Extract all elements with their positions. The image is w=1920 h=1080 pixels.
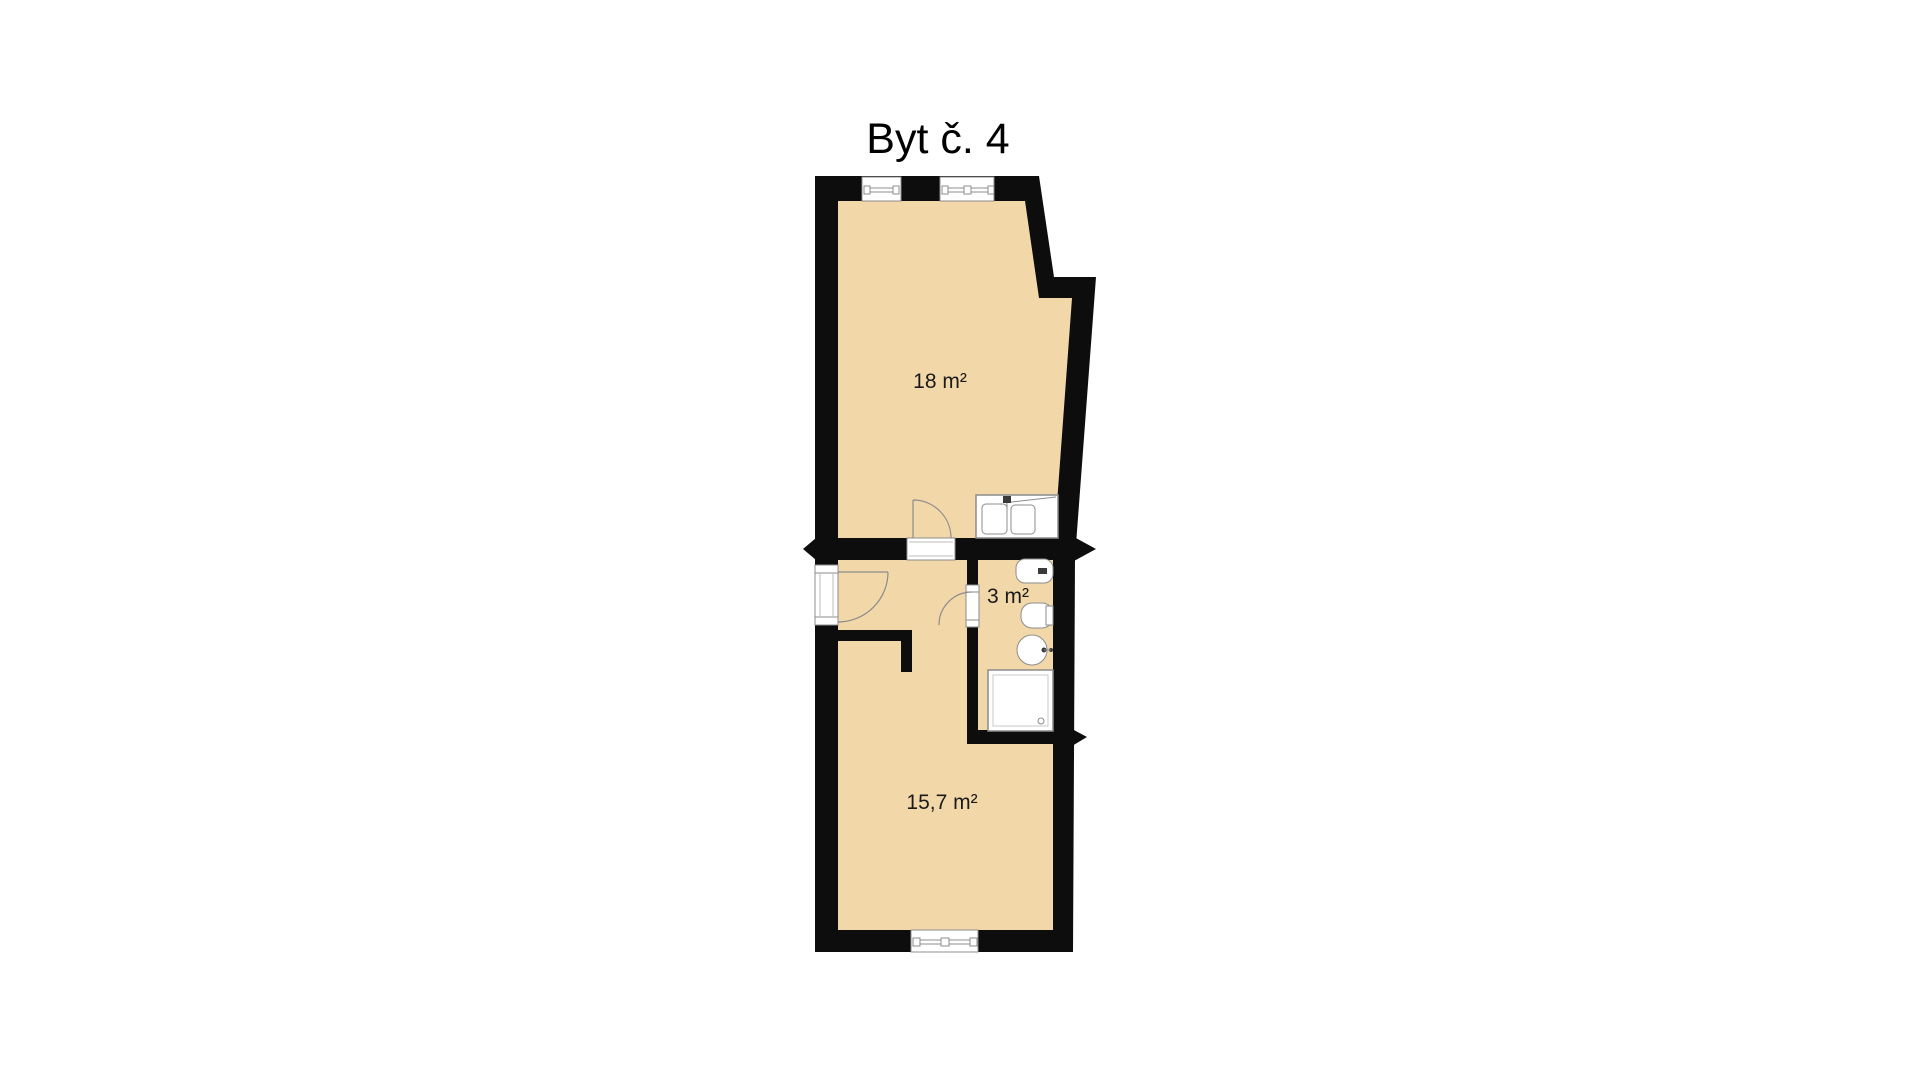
- bathtub: [1016, 559, 1053, 583]
- floor-plan-page: Byt č. 4: [0, 0, 1920, 1080]
- wall-miter-right-upper: [1074, 537, 1096, 561]
- wall-hall-stub-vertical: [901, 630, 912, 672]
- sink-basin-right: [1011, 505, 1035, 534]
- window-top-right: [940, 177, 994, 201]
- toilet-cistern: [1046, 606, 1053, 625]
- wall-room-divider: [838, 538, 1075, 560]
- shower: [988, 670, 1053, 731]
- window-top-left: [862, 177, 901, 201]
- living-room-area-label: 18 m²: [913, 370, 967, 393]
- window-bottom: [911, 930, 978, 952]
- shower-drain: [1038, 718, 1044, 724]
- wall-bathroom-left: [967, 538, 978, 744]
- wall-bathroom-bottom: [967, 730, 1058, 744]
- sink-faucet: [1003, 496, 1011, 503]
- sink-basin-left: [982, 504, 1007, 534]
- bathtub-faucet: [1038, 568, 1047, 574]
- bedroom-area-label: 15,7 m²: [906, 791, 977, 814]
- wall-miter-left: [803, 538, 816, 560]
- kitchen-sink-counter: [976, 495, 1058, 538]
- page-title: Byt č. 4: [866, 115, 1009, 163]
- bathroom-area-label: 3 m²: [987, 585, 1029, 608]
- wall-miter-right-lower: [1072, 729, 1087, 746]
- wall-hall-stub-horizontal: [838, 630, 912, 641]
- floor-plan-drawing: Byt č. 4: [0, 0, 1920, 1080]
